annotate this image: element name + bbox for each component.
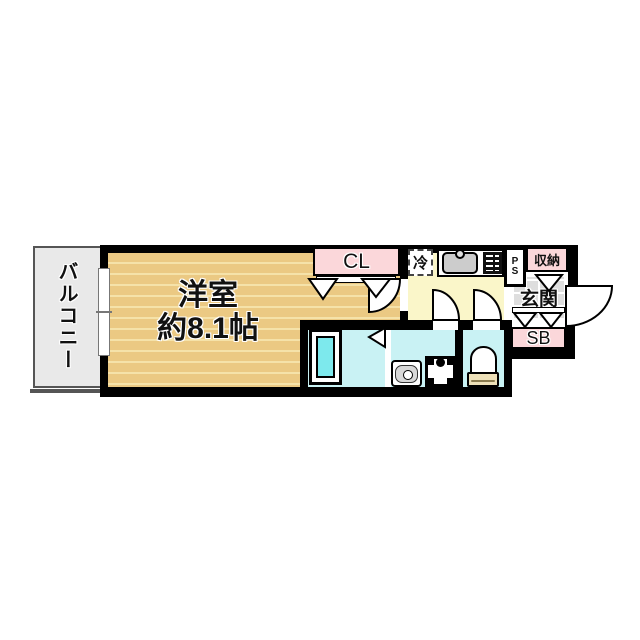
entry-door-arc	[566, 286, 612, 326]
toilet-door-arc	[474, 290, 501, 320]
storage-door-triangle	[536, 275, 562, 291]
main-room-size: 約8.1帖	[157, 312, 259, 345]
washbasin-bowl	[395, 365, 418, 383]
bathtub-icon	[309, 329, 342, 385]
washbasin-icon	[391, 360, 422, 387]
main-room-label-block: 洋室 約8.1帖	[108, 272, 308, 352]
floor-plan: バルコニー CL 冷 P S 収納 玄関 SB	[0, 0, 640, 640]
bath-door-triangle	[369, 328, 385, 347]
washer-pan-corner	[447, 378, 453, 384]
washing-machine-icon	[425, 356, 456, 387]
washer-pan-corner	[428, 359, 434, 365]
bathtub-basin	[316, 336, 335, 378]
washer-pan-corner	[428, 378, 434, 384]
toilet-base	[467, 372, 499, 387]
washroom-door-arc	[433, 290, 459, 320]
toilet-base-line	[471, 380, 495, 382]
washer-tap-icon	[436, 358, 445, 367]
door-symbols	[0, 0, 640, 640]
closet-door-triangle-left	[309, 279, 337, 299]
shoebox-door-triangle-left	[514, 313, 536, 327]
shoebox-door-triangle-right	[540, 313, 562, 327]
washbasin-drain	[403, 370, 413, 380]
main-room-name: 洋室	[178, 279, 238, 312]
washer-pan-corner	[447, 359, 453, 365]
